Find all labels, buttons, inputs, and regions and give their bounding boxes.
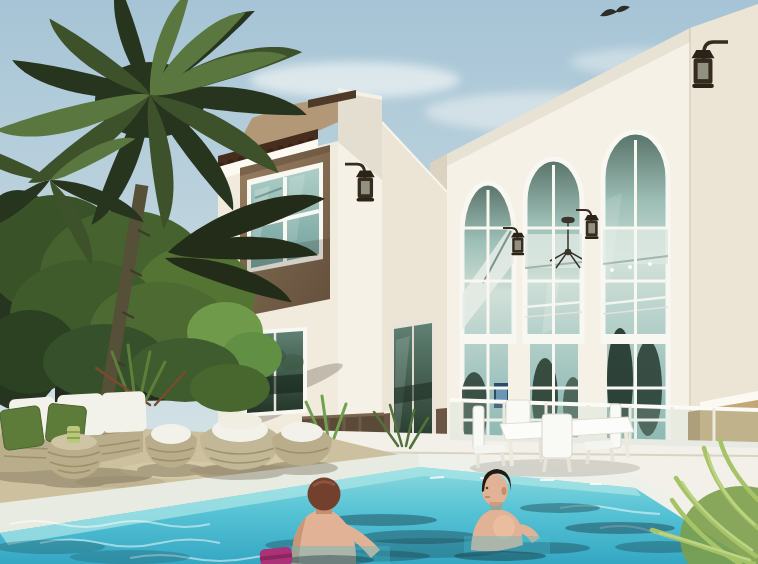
villa-pool-rendering (0, 0, 758, 564)
back-cushion (101, 391, 147, 433)
green-pillow (0, 405, 45, 450)
rendering-canvas (0, 0, 758, 564)
striped-cup (67, 426, 80, 443)
floor-slab-band (460, 334, 670, 344)
